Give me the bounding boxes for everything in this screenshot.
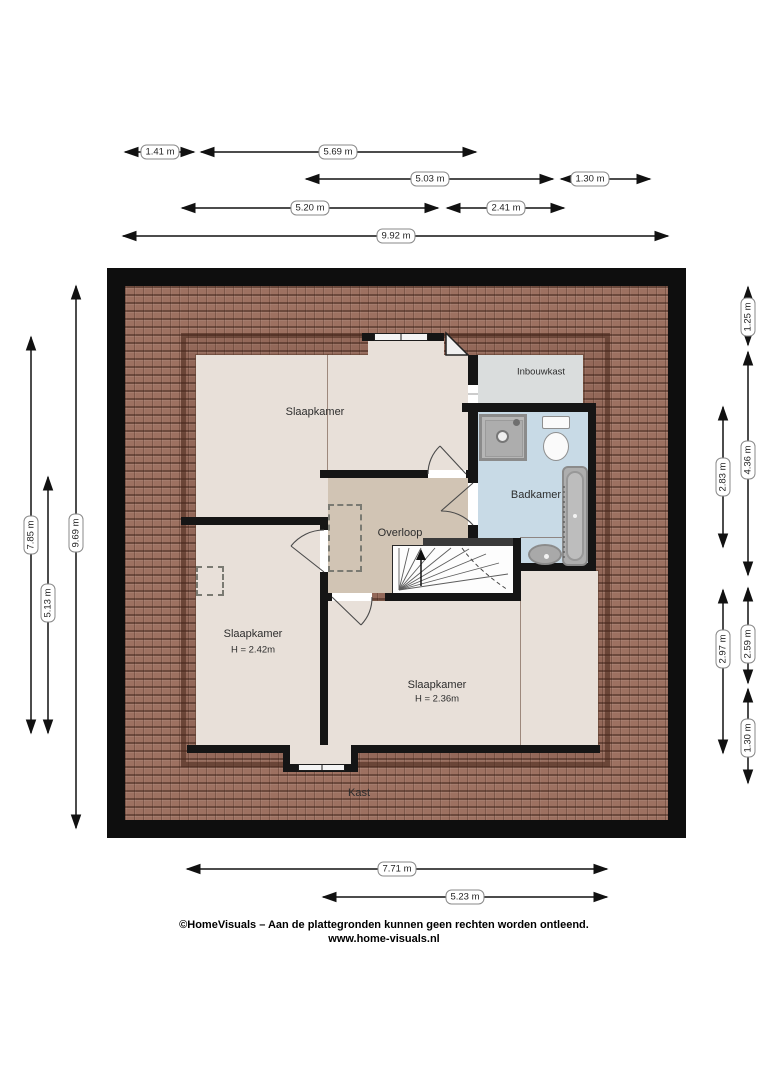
wall-segment — [362, 333, 374, 341]
floor-plan-page: Slaapkamer Inbouwkast Badkamer Overloop … — [0, 0, 768, 1086]
shower-drain-icon — [496, 430, 509, 443]
dim-label: 2.83 m — [716, 457, 731, 496]
dim-label: 5.69 m — [318, 145, 357, 160]
sink-icon — [528, 544, 562, 565]
dim-label: 2.97 m — [716, 629, 731, 668]
roof-window-marker — [196, 566, 224, 596]
dim-label: 9.92 m — [376, 229, 415, 244]
wall-segment — [181, 517, 328, 525]
dim-label: 1.30 m — [570, 172, 609, 187]
dim-label: 2.59 m — [741, 624, 756, 663]
dim-label: 4.36 m — [741, 440, 756, 479]
wall-segment — [462, 403, 590, 412]
room-label-slaapkamer-1: Slaapkamer — [286, 406, 345, 418]
room-label-kast: Kast — [348, 787, 370, 799]
stair-railing — [423, 538, 521, 546]
wall-segment — [187, 745, 283, 753]
wall-segment — [468, 355, 478, 385]
window-icon — [298, 764, 345, 771]
wall-segment — [468, 412, 478, 483]
toilet-icon — [542, 416, 570, 429]
room-label-slaapkamer-2: Slaapkamer — [224, 628, 283, 640]
room-slaapkamer-1 — [328, 355, 468, 470]
door-opening — [320, 530, 328, 572]
wall-segment — [588, 403, 596, 571]
room-label-badkamer: Badkamer — [511, 489, 561, 501]
dim-label: 2.41 m — [486, 201, 525, 216]
toilet-icon — [543, 432, 569, 461]
dim-label: 1.25 m — [741, 297, 756, 336]
room-slaapkamer-3 — [521, 571, 598, 745]
wall-segment — [513, 538, 521, 601]
wall-segment — [320, 470, 428, 478]
wall-segment — [320, 593, 332, 601]
dim-label: 1.30 m — [741, 718, 756, 757]
room-label-inbouwkast: Inbouwkast — [517, 367, 565, 378]
dim-label: 5.23 m — [445, 890, 484, 905]
room-slaapkamer-1 — [196, 355, 328, 517]
wall-segment — [428, 333, 444, 341]
room-slaapkamer-3 — [328, 601, 521, 745]
footer-disclaimer: ©HomeVisuals – Aan de plattegronden kunn… — [0, 918, 768, 932]
room-height-slaapkamer-2: H = 2.42m — [231, 645, 275, 656]
dim-label: 7.71 m — [377, 862, 416, 877]
room-label-slaapkamer-3: Slaapkamer — [408, 679, 467, 691]
bathtub-icon — [562, 466, 588, 566]
room-inbouwkast — [478, 355, 583, 403]
room-label-overloop: Overloop — [378, 527, 423, 539]
dim-label: 5.13 m — [41, 583, 56, 622]
footer-url: www.home-visuals.nl — [0, 932, 768, 946]
dim-label: 7.85 m — [24, 515, 39, 554]
shower-head-icon — [513, 419, 520, 426]
room-height-slaapkamer-3: H = 2.36m — [415, 694, 459, 705]
dormer-floor — [290, 745, 351, 764]
wall-segment — [385, 593, 521, 601]
dim-label: 5.20 m — [290, 201, 329, 216]
void-marker — [328, 504, 362, 572]
room-slaapkamer-1-dormer — [368, 341, 444, 357]
dim-label: 9.69 m — [69, 513, 84, 552]
dim-label: 1.41 m — [140, 145, 179, 160]
window-icon — [374, 333, 428, 341]
staircase — [393, 546, 513, 593]
wall-segment — [358, 745, 600, 753]
door-opening — [468, 385, 478, 403]
door-opening — [428, 470, 466, 478]
wall-segment — [320, 517, 328, 530]
dim-label: 5.03 m — [410, 172, 449, 187]
door-opening — [332, 593, 372, 601]
door-opening — [468, 483, 478, 525]
